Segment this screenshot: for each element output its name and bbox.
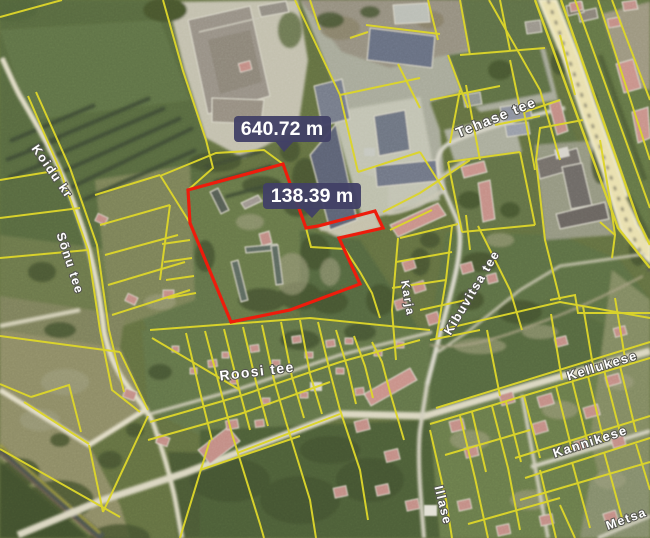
- svg-text:640.72 m: 640.72 m: [241, 118, 323, 140]
- svg-text:138.39 m: 138.39 m: [271, 185, 353, 207]
